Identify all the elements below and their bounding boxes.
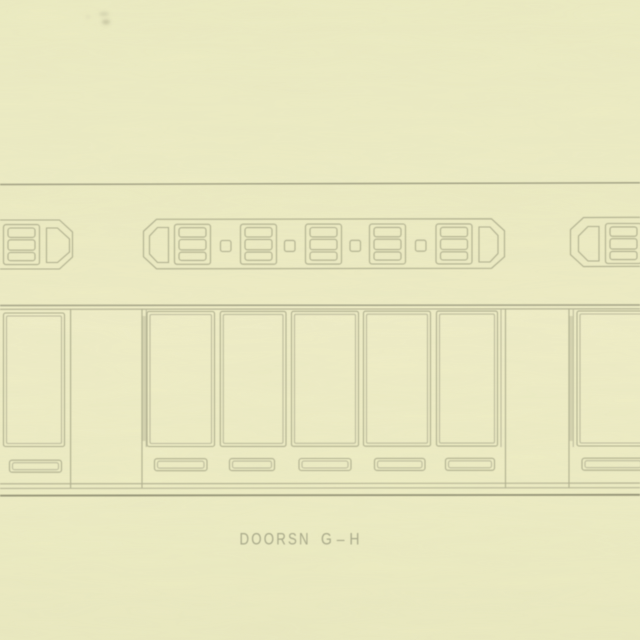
svg-text:DOORSN: DOORSN <box>240 530 311 549</box>
svg-text:G–H: G–H <box>321 530 364 549</box>
